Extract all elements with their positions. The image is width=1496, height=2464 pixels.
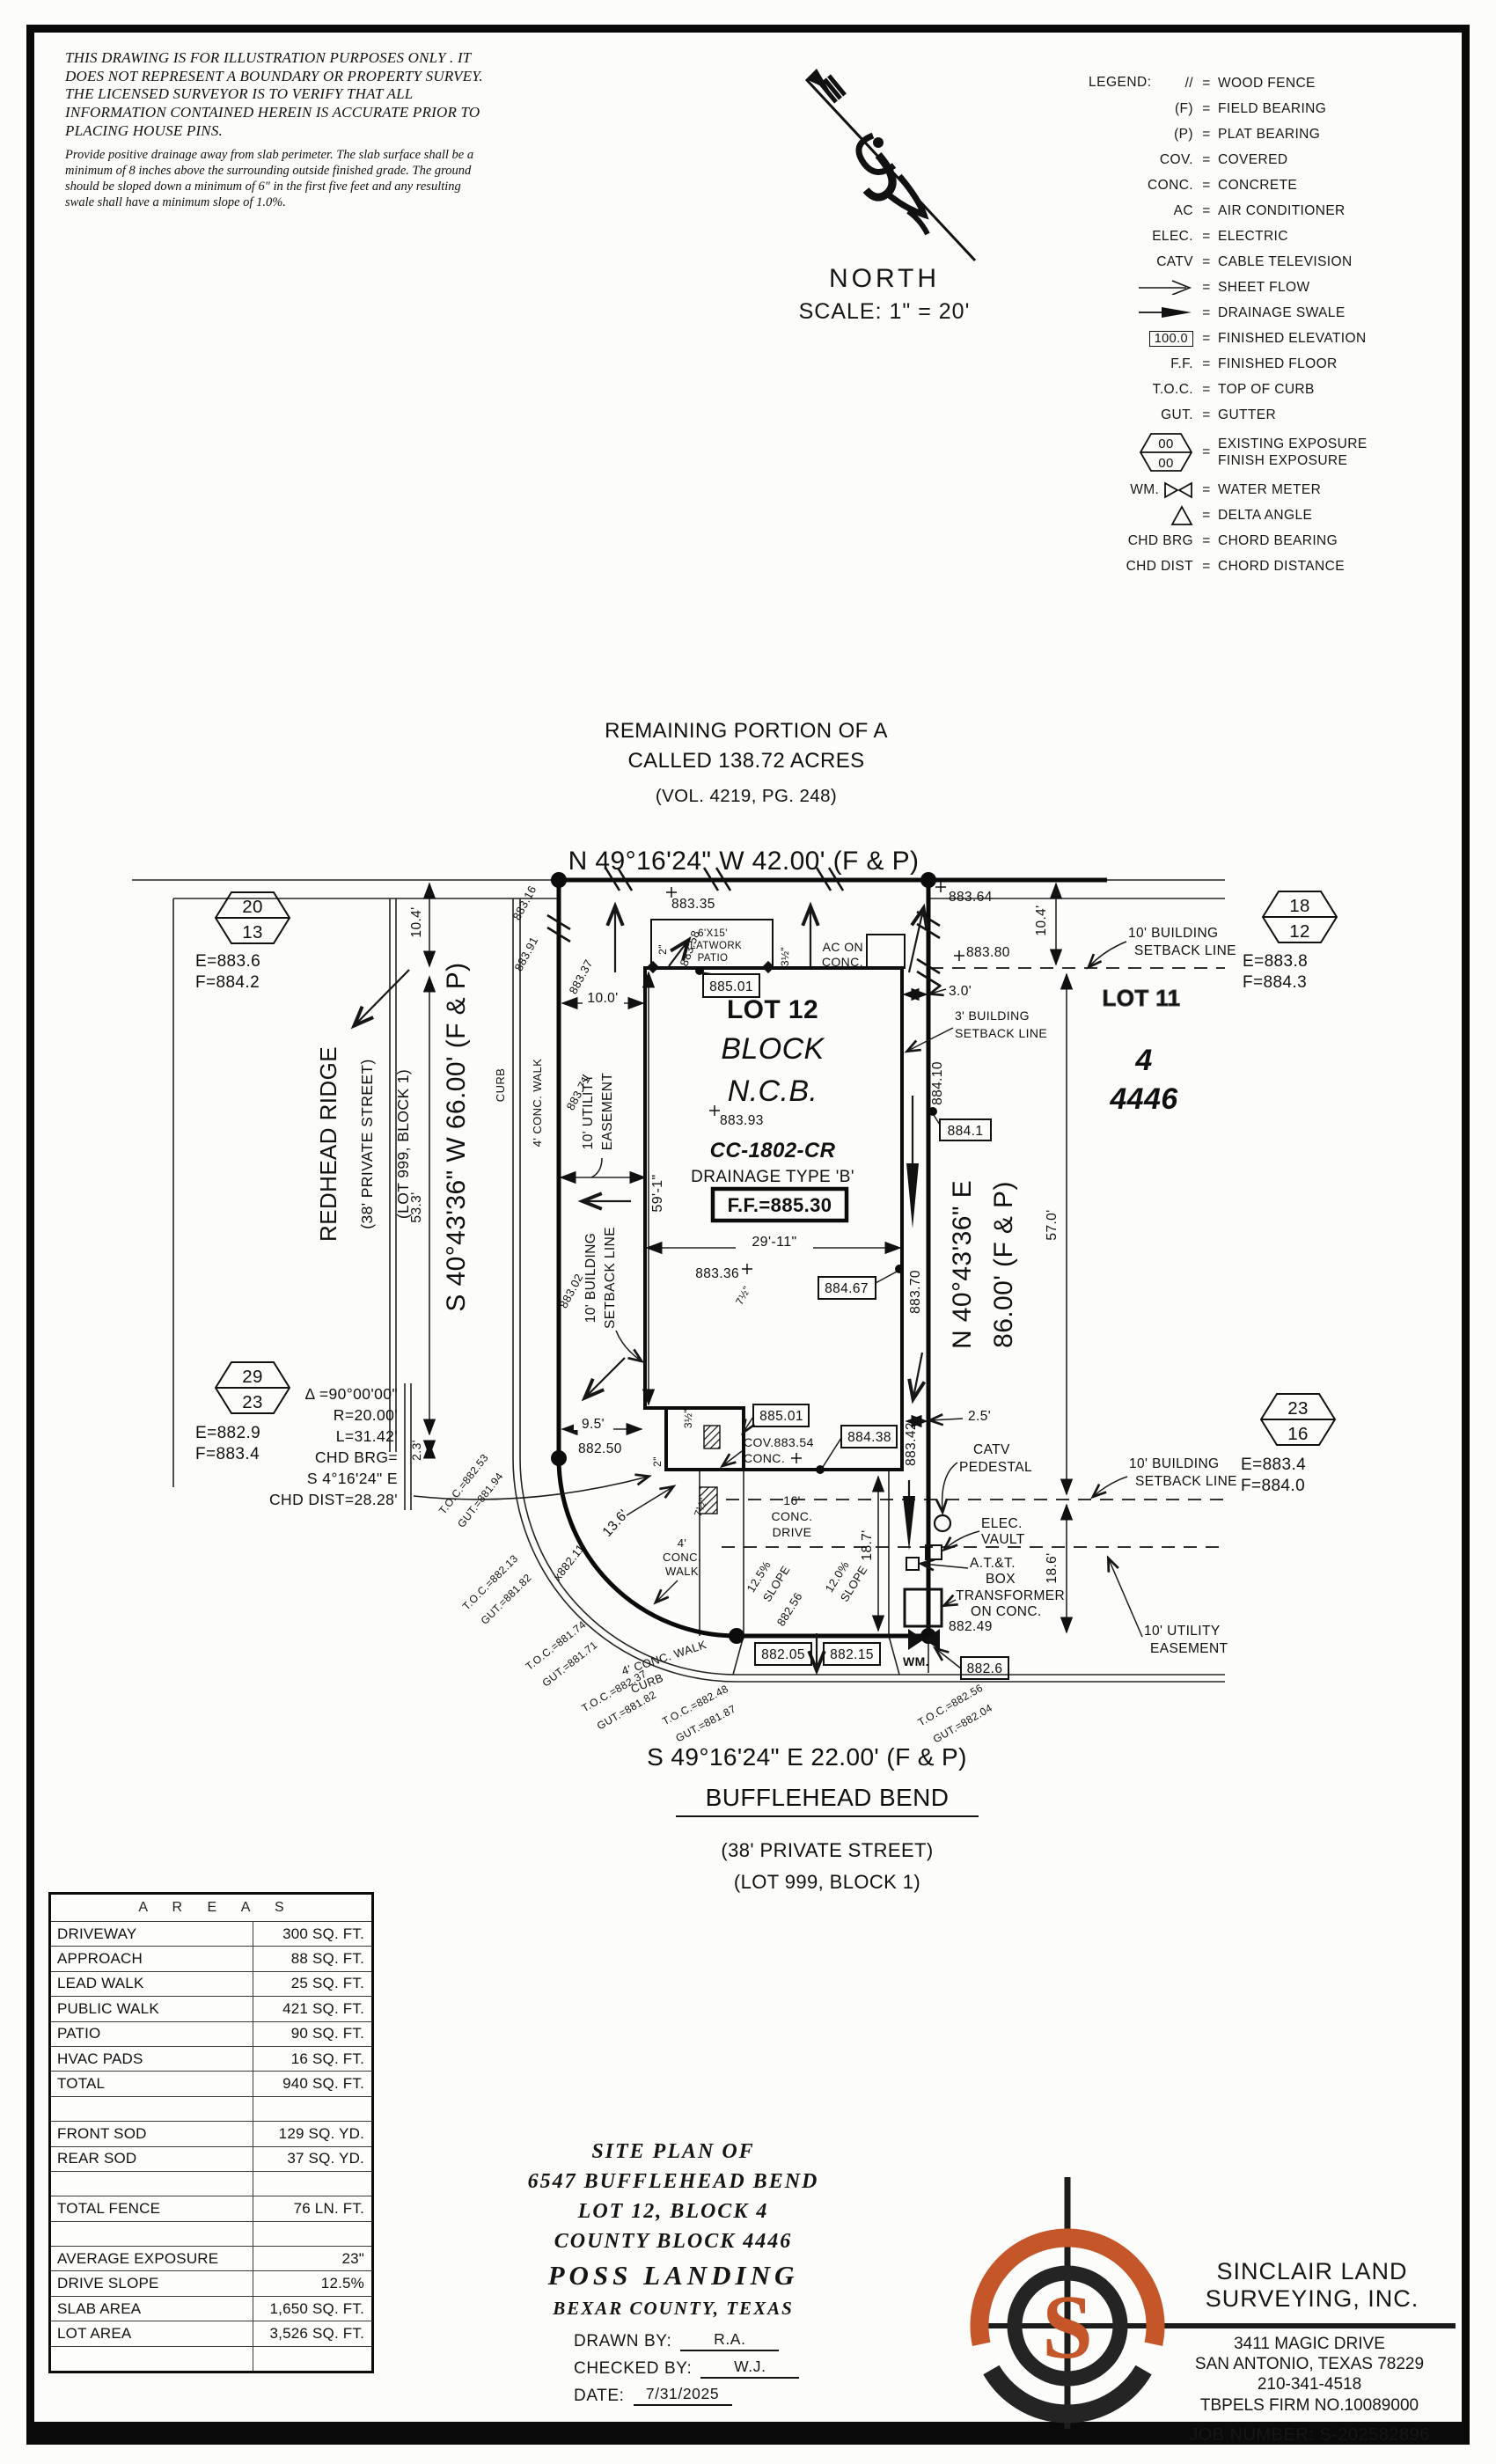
svg-text:16: 16 bbox=[1287, 1424, 1309, 1444]
table-row: LOT AREA3,526 SQ. FT. bbox=[51, 2321, 371, 2345]
svg-text:883.80: 883.80 bbox=[966, 945, 1010, 960]
svg-text:CURB: CURB bbox=[494, 1068, 507, 1102]
table-row: TOTAL940 SQ. FT. bbox=[51, 2071, 371, 2095]
areas-table-title: A R E A S bbox=[51, 1895, 371, 1921]
svg-text:10.4': 10.4' bbox=[409, 906, 424, 937]
svg-text:883.36: 883.36 bbox=[695, 1266, 739, 1281]
table-row: REAR SOD37 SQ. YD. bbox=[51, 2146, 371, 2171]
south-boundary-bearing: S 49°16'24" E 22.00' (F & P) bbox=[647, 1743, 967, 1771]
north-boundary-bearing: N 49°16'24" W 42.00' (F & P) bbox=[568, 847, 920, 876]
svg-text:10' BUILDING: 10' BUILDING bbox=[1128, 926, 1219, 941]
street-name-redhead-ridge: REDHEAD RIDGE bbox=[315, 1046, 341, 1242]
svg-text:EASEMENT: EASEMENT bbox=[1150, 1641, 1228, 1656]
svg-text:4': 4' bbox=[678, 1536, 687, 1550]
table-row: DRIVEWAY300 SQ. FT. bbox=[51, 1921, 371, 1946]
svg-text:SETBACK LINE: SETBACK LINE bbox=[603, 1227, 618, 1329]
svg-text:(38' PRIVATE STREET): (38' PRIVATE STREET) bbox=[358, 1059, 376, 1229]
firm-city: SAN ANTONIO, TEXAS 78229 bbox=[1167, 2354, 1452, 2374]
svg-text:CHD DIST=28.28': CHD DIST=28.28' bbox=[269, 1491, 398, 1508]
table-row: TOTAL FENCE76 LN. FT. bbox=[51, 2196, 371, 2220]
property-boundary bbox=[551, 872, 1107, 1644]
svg-text:2.5': 2.5' bbox=[968, 1409, 991, 1424]
svg-text:18.7': 18.7' bbox=[860, 1529, 875, 1560]
svg-text:884.10: 884.10 bbox=[930, 1061, 945, 1105]
table-row bbox=[51, 2346, 371, 2371]
west-boundary-bearing: S 40°43'36" W 66.00' (F & P) bbox=[442, 962, 471, 1311]
svg-text:(LOT 999, BLOCK 1): (LOT 999, BLOCK 1) bbox=[734, 1871, 920, 1893]
svg-text:2.3': 2.3' bbox=[409, 1440, 423, 1461]
svg-text:PEDESTAL: PEDESTAL bbox=[959, 1460, 1032, 1475]
svg-text:CONC.: CONC. bbox=[771, 1509, 812, 1523]
svg-text:885.01: 885.01 bbox=[759, 1409, 803, 1424]
subdivision-name: POSS LANDING bbox=[465, 2260, 882, 2292]
svg-text:883.35: 883.35 bbox=[671, 897, 715, 912]
firm-phone: 210-341-4518 bbox=[1167, 2374, 1452, 2394]
svg-text:9.5': 9.5' bbox=[582, 1417, 605, 1432]
svg-text:18: 18 bbox=[1289, 896, 1310, 916]
svg-text:E=882.9: E=882.9 bbox=[195, 1424, 260, 1442]
svg-text:COV.883.54: COV.883.54 bbox=[744, 1435, 814, 1449]
firm-street: 3411 MAGIC DRIVE bbox=[1167, 2334, 1452, 2354]
svg-text:T.O.C.=882.53: T.O.C.=882.53 bbox=[436, 1452, 491, 1517]
svg-text:DRIVE: DRIVE bbox=[773, 1525, 812, 1539]
svg-text:882.49: 882.49 bbox=[949, 1619, 993, 1634]
svg-text:10' UTILITY: 10' UTILITY bbox=[581, 1074, 596, 1150]
east-boundary-bearing-1: N 40°43'36" E bbox=[948, 1180, 977, 1349]
svg-text:10' BUILDING: 10' BUILDING bbox=[1129, 1456, 1220, 1471]
svg-text:L=31.42': L=31.42' bbox=[336, 1427, 398, 1445]
svg-text:BLOCK: BLOCK bbox=[721, 1032, 825, 1066]
svg-text:E=883.8: E=883.8 bbox=[1243, 952, 1308, 971]
checked-by-value: W.J. bbox=[700, 2358, 799, 2379]
svg-text:10' UTILITY: 10' UTILITY bbox=[1144, 1624, 1221, 1639]
svg-text:TRANSFORMER: TRANSFORMER bbox=[956, 1588, 1065, 1603]
svg-text:13: 13 bbox=[242, 922, 263, 942]
svg-text:53.3': 53.3' bbox=[409, 1192, 424, 1222]
drainage-swale-arrow bbox=[906, 1163, 919, 1228]
firm-address: 3411 MAGIC DRIVE SAN ANTONIO, TEXAS 7822… bbox=[1167, 2334, 1452, 2446]
svg-text:x882.11: x882.11 bbox=[551, 1542, 587, 1583]
svg-text:2": 2" bbox=[651, 1456, 664, 1467]
finished-floor-elevation: F.F.=885.30 bbox=[728, 1194, 832, 1216]
svg-text:4446: 4446 bbox=[1109, 1082, 1178, 1116]
table-row: PUBLIC WALK421 SQ. FT. bbox=[51, 1996, 371, 2020]
svg-text:2": 2" bbox=[656, 944, 669, 955]
svg-text:23: 23 bbox=[242, 1392, 263, 1412]
svg-text:18.6': 18.6' bbox=[1045, 1552, 1060, 1583]
svg-text:CHD BRG=: CHD BRG= bbox=[315, 1448, 398, 1466]
svg-text:885.01: 885.01 bbox=[709, 979, 753, 994]
svg-text:883.42: 883.42 bbox=[904, 1422, 919, 1466]
svg-text:4' CONC. WALK: 4' CONC. WALK bbox=[620, 1638, 708, 1677]
svg-text:SETBACK LINE: SETBACK LINE bbox=[1135, 1474, 1237, 1489]
svg-text:23: 23 bbox=[1287, 1398, 1309, 1419]
table-row: SLAB AREA1,650 SQ. FT. bbox=[51, 2296, 371, 2321]
svg-text:N.C.B.: N.C.B. bbox=[728, 1074, 818, 1108]
svg-text:13.6': 13.6' bbox=[600, 1507, 632, 1539]
table-row: APPROACH88 SQ. FT. bbox=[51, 1946, 371, 1970]
table-row bbox=[51, 2221, 371, 2246]
svg-text:BOX: BOX bbox=[986, 1572, 1016, 1587]
svg-text:883.16: 883.16 bbox=[510, 884, 539, 922]
table-row: PATIO90 SQ. FT. bbox=[51, 2021, 371, 2046]
table-row: FRONT SOD129 SQ. YD. bbox=[51, 2121, 371, 2145]
catv-pedestal-icon bbox=[935, 1515, 950, 1531]
table-row: AVERAGE EXPOSURE23" bbox=[51, 2246, 371, 2270]
svg-text:(38' PRIVATE STREET): (38' PRIVATE STREET) bbox=[721, 1839, 933, 1861]
svg-text:AC ON: AC ON bbox=[823, 940, 863, 954]
svg-text:S 4°16'24" E: S 4°16'24" E bbox=[307, 1470, 398, 1487]
svg-text:CATV: CATV bbox=[973, 1442, 1010, 1457]
hex-marker-18-12: 18 12 E=883.8 F=884.3 bbox=[1243, 891, 1337, 992]
svg-text:20: 20 bbox=[242, 897, 263, 917]
hex-marker-29-23: 29 23 E=882.9 F=883.4 bbox=[195, 1362, 290, 1463]
table-row bbox=[51, 2171, 371, 2196]
hex-marker-20-13: 20 13 E=883.6 F=884.2 bbox=[195, 892, 290, 992]
svg-text:CONC.: CONC. bbox=[744, 1451, 785, 1465]
drawn-by-value: R.A. bbox=[680, 2330, 779, 2351]
svg-text:R=20.00': R=20.00' bbox=[334, 1406, 398, 1424]
transformer-icon bbox=[905, 1589, 942, 1626]
svg-text:12: 12 bbox=[1289, 921, 1310, 942]
site-plan-sheet: THIS DRAWING IS FOR ILLUSTRATION PURPOSE… bbox=[0, 0, 1496, 2464]
volume-page-ref: (VOL. 4219, PG. 248) bbox=[656, 786, 837, 806]
svg-text:3.0': 3.0' bbox=[949, 984, 972, 999]
svg-text:T.O.C.=882.13: T.O.C.=882.13 bbox=[460, 1552, 521, 1613]
att-box-icon bbox=[906, 1558, 919, 1570]
svg-text:882.15: 882.15 bbox=[830, 1647, 874, 1662]
svg-text:884.1: 884.1 bbox=[948, 1124, 984, 1139]
svg-text:WALK: WALK bbox=[665, 1565, 699, 1578]
svg-text:6'X15': 6'X15' bbox=[698, 928, 728, 939]
svg-text:883.93: 883.93 bbox=[720, 1113, 764, 1128]
svg-text:PATIO: PATIO bbox=[698, 953, 729, 964]
svg-text:3' BUILDING: 3' BUILDING bbox=[955, 1008, 1030, 1023]
ac-pad bbox=[867, 935, 905, 968]
svg-text:7½": 7½" bbox=[692, 1496, 710, 1519]
svg-text:16': 16' bbox=[783, 1493, 800, 1507]
svg-text:57.0': 57.0' bbox=[1045, 1209, 1060, 1240]
remaining-portion-line1: REMAINING PORTION OF A bbox=[605, 719, 888, 743]
table-row: LEAD WALK25 SQ. FT. bbox=[51, 1971, 371, 1996]
svg-text:E=883.4: E=883.4 bbox=[1241, 1456, 1306, 1474]
drawing-meta: DRAWN BY: R.A. CHECKED BY: W.J. DATE: 7/… bbox=[574, 2330, 855, 2412]
svg-text:E=883.6: E=883.6 bbox=[195, 952, 260, 971]
svg-text:CONC.: CONC. bbox=[663, 1551, 701, 1564]
svg-text:7½": 7½" bbox=[733, 1284, 753, 1307]
firm-name: SINCLAIR LAND SURVEYING, INC. bbox=[1177, 2258, 1447, 2313]
table-row bbox=[51, 2096, 371, 2121]
svg-text:10.0': 10.0' bbox=[587, 991, 618, 1006]
svg-text:59'-1": 59'-1" bbox=[650, 1174, 665, 1212]
svg-text:3½": 3½" bbox=[682, 1409, 694, 1428]
svg-text:F=883.4: F=883.4 bbox=[195, 1445, 260, 1463]
table-row: DRIVE SLOPE12.5% bbox=[51, 2270, 371, 2295]
lot11-label: LOT 11 bbox=[1102, 985, 1180, 1011]
svg-text:882.56: 882.56 bbox=[774, 1590, 805, 1629]
svg-text:882.05: 882.05 bbox=[761, 1647, 805, 1662]
svg-text:884.38: 884.38 bbox=[847, 1430, 891, 1445]
svg-text:ON CONC.: ON CONC. bbox=[971, 1604, 1042, 1619]
svg-text:CC-1802-CR: CC-1802-CR bbox=[710, 1139, 836, 1162]
svg-text:F=884.2: F=884.2 bbox=[195, 973, 260, 992]
svg-text:4' CONC. WALK: 4' CONC. WALK bbox=[531, 1059, 544, 1147]
svg-text:884.67: 884.67 bbox=[825, 1281, 869, 1296]
svg-text:SETBACK LINE: SETBACK LINE bbox=[1134, 943, 1236, 958]
svg-text:SETBACK LINE: SETBACK LINE bbox=[955, 1026, 1047, 1040]
svg-text:A.T.&T.: A.T.&T. bbox=[970, 1556, 1016, 1571]
svg-text:F=884.0: F=884.0 bbox=[1241, 1477, 1305, 1495]
svg-text:VAULT: VAULT bbox=[981, 1532, 1025, 1547]
svg-text:F=884.3: F=884.3 bbox=[1243, 973, 1307, 992]
svg-text:10.4': 10.4' bbox=[1034, 905, 1049, 935]
svg-text:EASEMENT: EASEMENT bbox=[600, 1073, 615, 1151]
date-value: 7/31/2025 bbox=[634, 2385, 732, 2406]
svg-text:4: 4 bbox=[1134, 1044, 1152, 1077]
svg-text:883.91: 883.91 bbox=[512, 935, 541, 973]
svg-text:3½": 3½" bbox=[779, 947, 791, 966]
areas-table: A R E A S DRIVEWAY300 SQ. FT. APPROACH88… bbox=[48, 1892, 374, 2373]
drainage-swale-arrow bbox=[903, 1496, 915, 1551]
title-block: SITE PLAN OF 6547 BUFFLEHEAD BEND LOT 12… bbox=[465, 2140, 882, 2326]
east-boundary-bearing-2: 86.00' (F & P) bbox=[989, 1181, 1018, 1348]
svg-text:10' BUILDING: 10' BUILDING bbox=[583, 1233, 598, 1324]
table-row: HVAC PADS16 SQ. FT. bbox=[51, 2046, 371, 2071]
svg-text:ELEC.: ELEC. bbox=[981, 1516, 1023, 1531]
svg-text:882.6: 882.6 bbox=[967, 1661, 1003, 1676]
street-name-bufflehead-bend: BUFFLEHEAD BEND bbox=[706, 1784, 950, 1811]
svg-text:FLATWORK: FLATWORK bbox=[684, 941, 742, 951]
hex-marker-23-16: 23 16 E=883.4 F=884.0 bbox=[1241, 1394, 1335, 1495]
lot12-label: LOT 12 bbox=[727, 995, 818, 1024]
svg-text:29'-11": 29'-11" bbox=[752, 1235, 796, 1250]
site-address: 6547 BUFFLEHEAD BEND bbox=[465, 2170, 882, 2194]
remaining-portion-line2: CALLED 138.72 ACRES bbox=[627, 749, 864, 773]
logo-letter: S bbox=[1042, 2277, 1093, 2378]
svg-text:883.64: 883.64 bbox=[949, 890, 993, 905]
svg-text:882.50: 882.50 bbox=[578, 1441, 622, 1456]
job-number: JOB NUMBER: S-202582896 bbox=[1167, 2424, 1452, 2446]
porch-column bbox=[704, 1426, 720, 1448]
svg-text:29: 29 bbox=[242, 1367, 263, 1387]
svg-text:WM.: WM. bbox=[903, 1654, 929, 1668]
svg-text:DRAINAGE TYPE 'B': DRAINAGE TYPE 'B' bbox=[691, 1168, 854, 1186]
firm-number: TBPELS FIRM NO.10089000 bbox=[1167, 2395, 1452, 2416]
title-line: SITE PLAN OF bbox=[465, 2140, 882, 2164]
svg-text:883.70: 883.70 bbox=[908, 1270, 923, 1314]
svg-text:CONC.: CONC. bbox=[822, 955, 863, 969]
curve-delta: Δ =90°00'00" bbox=[304, 1385, 398, 1403]
